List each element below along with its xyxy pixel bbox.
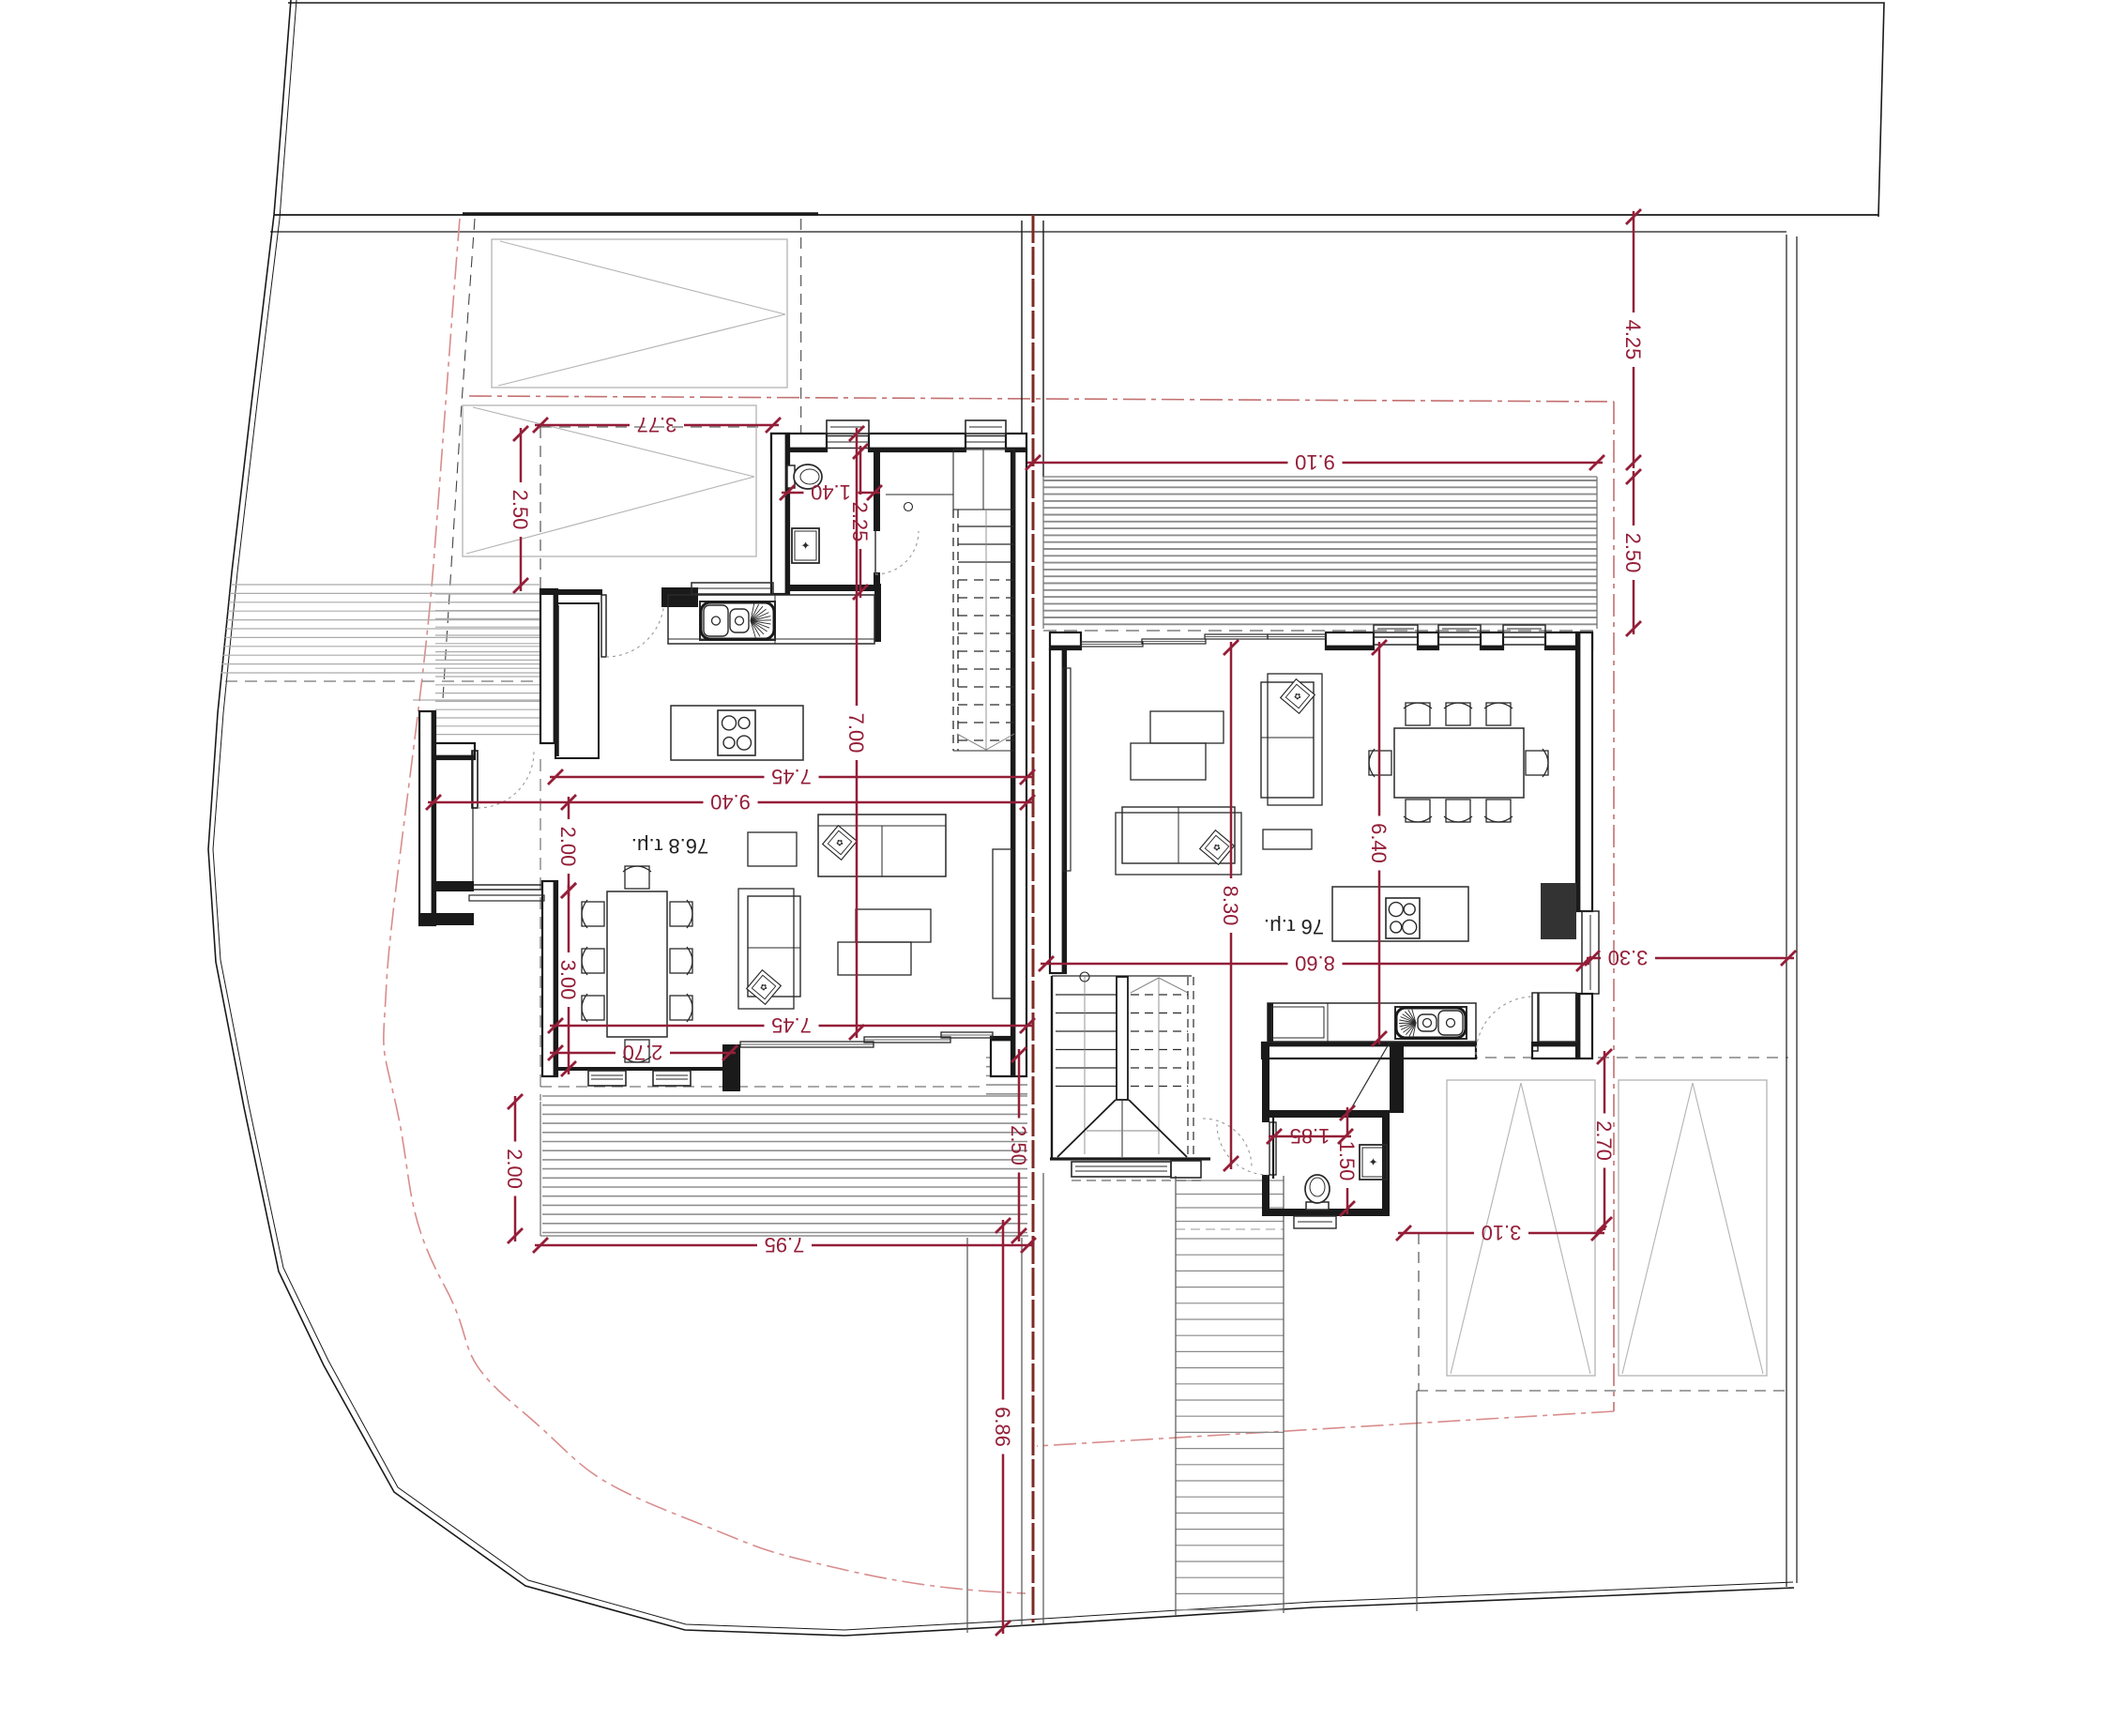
svg-text:✦: ✦ [800,540,810,553]
svg-text:2.50: 2.50 [1007,1125,1030,1165]
svg-text:2.25: 2.25 [848,502,872,542]
svg-text:6.86: 6.86 [991,1407,1014,1447]
svg-text:2.00: 2.00 [556,827,580,867]
svg-text:8.30: 8.30 [1219,886,1242,926]
svg-text:2.70: 2.70 [623,1041,663,1064]
svg-text:2.50: 2.50 [509,490,532,530]
svg-text:7.95: 7.95 [765,1233,805,1256]
svg-text:9.40: 9.40 [710,790,751,814]
svg-text:2.50: 2.50 [1621,533,1645,573]
svg-text:2.70: 2.70 [1592,1120,1616,1161]
svg-text:8.60: 8.60 [1295,952,1335,975]
svg-text:7.45: 7.45 [771,765,812,788]
svg-text:✦: ✦ [1368,1156,1377,1169]
svg-text:3.00: 3.00 [556,960,580,1000]
svg-text:9.10: 9.10 [1295,450,1335,474]
svg-text:7.00: 7.00 [844,713,868,754]
svg-text:6.40: 6.40 [1367,823,1391,863]
svg-text:3.77: 3.77 [637,413,677,436]
svg-text:3.30: 3.30 [1608,946,1649,969]
svg-text:4.25: 4.25 [1621,320,1645,360]
svg-text:3.10: 3.10 [1482,1221,1522,1244]
svg-text:1.50: 1.50 [1335,1141,1359,1181]
svg-text:76 τ.μ.: 76 τ.μ. [1264,915,1324,938]
svg-text:76.8 τ.μ.: 76.8 τ.μ. [631,834,709,858]
svg-text:1.85: 1.85 [1290,1124,1330,1148]
svg-text:7.45: 7.45 [771,1013,812,1037]
svg-text:2.00: 2.00 [503,1149,526,1189]
svg-text:1.40: 1.40 [811,480,851,504]
